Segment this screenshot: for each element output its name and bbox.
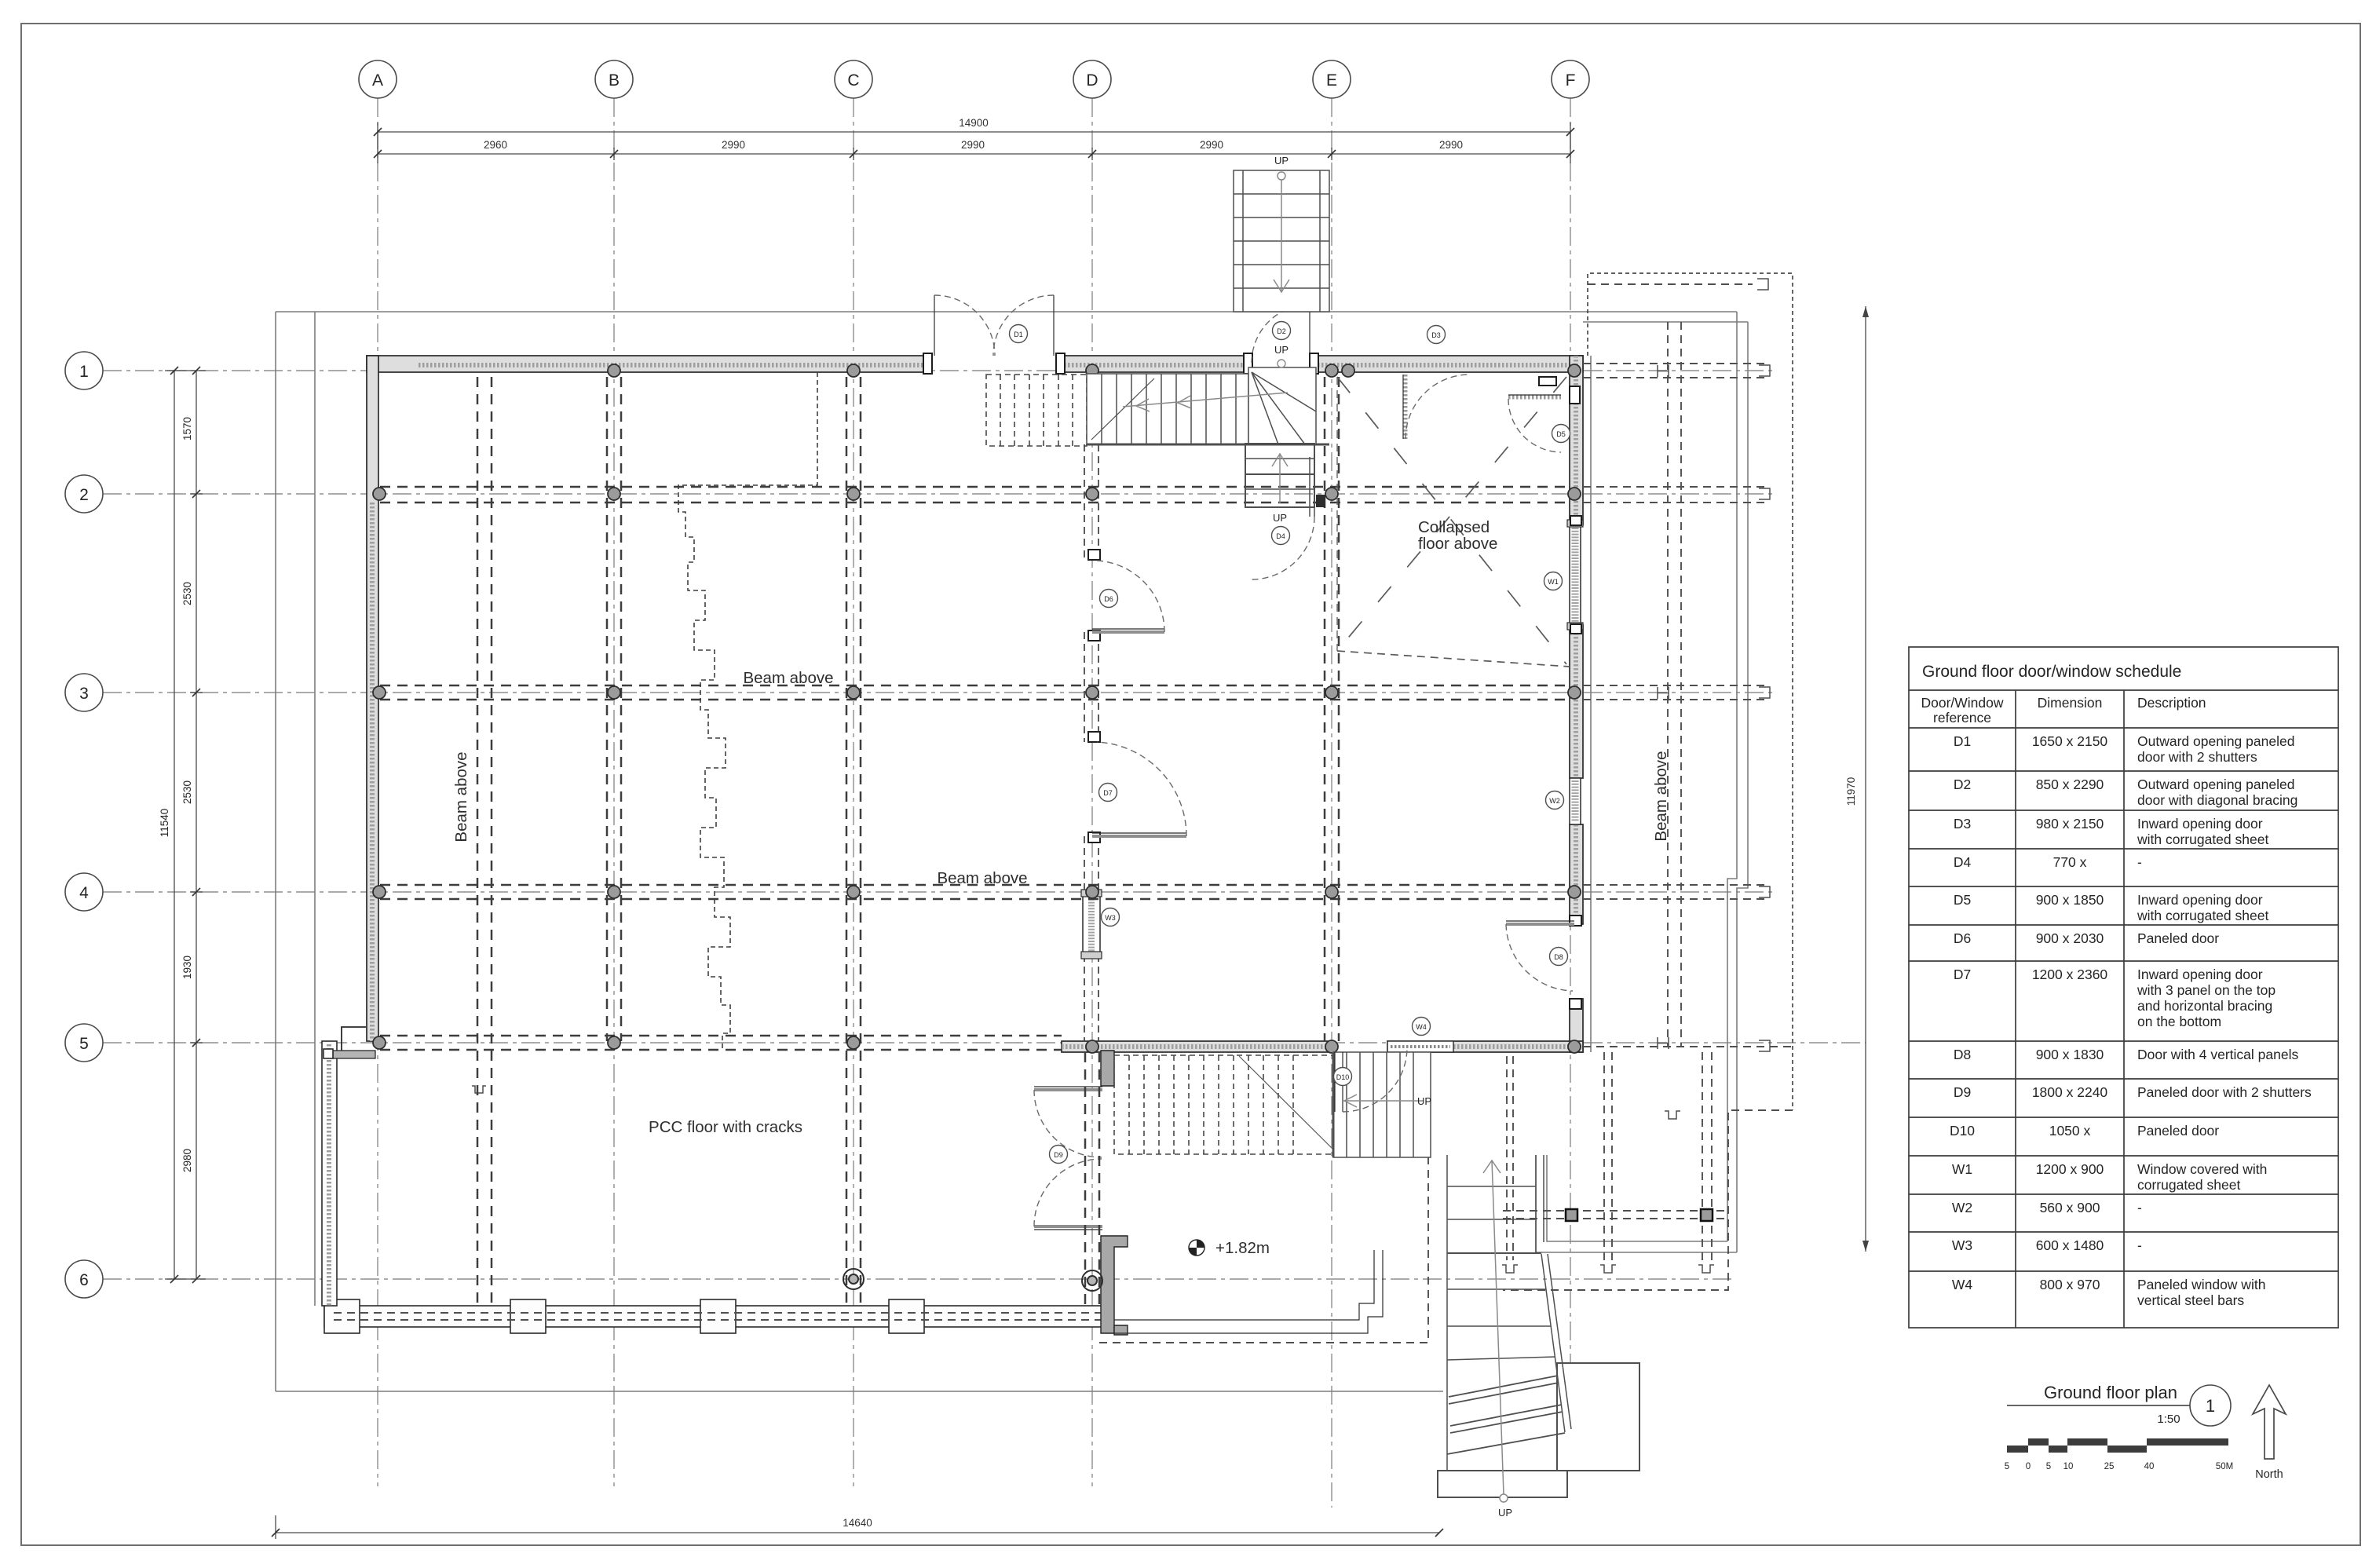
svg-text:UP: UP <box>1274 344 1289 356</box>
svg-text:900 x 1830: 900 x 1830 <box>2036 1047 2104 1062</box>
svg-text:W1: W1 <box>1548 578 1559 586</box>
svg-text:850 x 2290: 850 x 2290 <box>2036 777 2104 792</box>
svg-text:UP: UP <box>1498 1507 1512 1519</box>
svg-text:reference: reference <box>1933 710 1991 726</box>
svg-text:-: - <box>2137 1237 2142 1253</box>
svg-text:W4: W4 <box>1952 1277 1973 1292</box>
svg-text:UP: UP <box>1417 1095 1431 1107</box>
svg-text:Paneled door: Paneled door <box>2137 1123 2219 1139</box>
svg-text:2: 2 <box>79 486 89 504</box>
svg-text:560 x 900: 560 x 900 <box>2040 1200 2100 1215</box>
svg-text:D10: D10 <box>1950 1123 1975 1139</box>
svg-text:25: 25 <box>2104 1462 2115 1471</box>
svg-text:W2: W2 <box>1952 1200 1972 1215</box>
svg-text:D9: D9 <box>1954 1084 1971 1100</box>
svg-text:2990: 2990 <box>1200 139 1223 151</box>
svg-text:Ground floor plan: Ground floor plan <box>2044 1383 2177 1402</box>
svg-text:900 x 1850: 900 x 1850 <box>2036 892 2104 908</box>
svg-text:D3: D3 <box>1431 331 1441 339</box>
svg-text:40: 40 <box>2144 1462 2155 1471</box>
svg-text:W3: W3 <box>1105 914 1116 922</box>
svg-text:F: F <box>1566 71 1576 90</box>
svg-text:6: 6 <box>79 1271 89 1289</box>
svg-text:2960: 2960 <box>484 139 507 151</box>
svg-text:Beam above: Beam above <box>743 669 833 687</box>
svg-text:D3: D3 <box>1954 816 1971 832</box>
svg-text:14900: 14900 <box>959 117 989 129</box>
svg-text:1930: 1930 <box>181 956 193 979</box>
svg-text:D7: D7 <box>1103 789 1113 797</box>
svg-text:corrugated sheet: corrugated sheet <box>2137 1177 2240 1193</box>
svg-text:D9: D9 <box>1054 1151 1063 1159</box>
svg-text:2980: 2980 <box>181 1149 193 1172</box>
svg-text:-: - <box>2137 1200 2142 1215</box>
svg-text:770 x: 770 x <box>2053 854 2087 870</box>
svg-text:UP: UP <box>1273 512 1287 524</box>
svg-text:600 x 1480: 600 x 1480 <box>2036 1237 2104 1253</box>
svg-text:Description: Description <box>2137 695 2206 711</box>
svg-text:W3: W3 <box>1952 1237 1972 1253</box>
svg-text:with 3 panel on the top: with 3 panel on the top <box>2137 982 2275 998</box>
svg-text:D: D <box>1086 71 1098 90</box>
svg-text:D1: D1 <box>1954 733 1971 749</box>
svg-text:1: 1 <box>79 363 89 381</box>
svg-text:0: 0 <box>2026 1462 2031 1471</box>
svg-text:11970: 11970 <box>1845 777 1857 806</box>
svg-text:D1: D1 <box>1014 331 1023 338</box>
svg-text:floor above: floor above <box>1418 535 1497 553</box>
svg-text:D8: D8 <box>1954 1047 1971 1062</box>
svg-text:2990: 2990 <box>1439 139 1463 151</box>
svg-text:-: - <box>2137 854 2142 870</box>
svg-text:W1: W1 <box>1952 1161 1972 1177</box>
svg-text:and horizontal bracing: and horizontal bracing <box>2137 998 2272 1014</box>
svg-text:E: E <box>1326 71 1337 90</box>
svg-text:1: 1 <box>2206 1396 2215 1416</box>
svg-text:door with 2 shutters: door with 2 shutters <box>2137 749 2257 765</box>
svg-text:Door/Window: Door/Window <box>1921 695 2003 711</box>
svg-text:North: North <box>2255 1468 2283 1481</box>
svg-text:B: B <box>609 71 620 90</box>
svg-text:+1.82m: +1.82m <box>1215 1239 1270 1257</box>
svg-text:D10: D10 <box>1336 1073 1350 1081</box>
svg-text:Beam above: Beam above <box>452 751 470 842</box>
svg-text:1:50: 1:50 <box>2157 1413 2180 1426</box>
svg-text:D8: D8 <box>1554 953 1563 961</box>
svg-text:D6: D6 <box>1104 595 1113 603</box>
svg-text:Door with 4 vertical panels: Door with 4 vertical panels <box>2137 1047 2298 1062</box>
svg-text:D2: D2 <box>1954 777 1971 792</box>
svg-text:Ground floor door/window sched: Ground floor door/window schedule <box>1922 663 2181 681</box>
svg-text:1050 x: 1050 x <box>2049 1123 2091 1139</box>
svg-text:980 x 2150: 980 x 2150 <box>2036 816 2104 832</box>
svg-text:D5: D5 <box>1556 430 1566 438</box>
svg-text:5: 5 <box>2046 1462 2051 1471</box>
svg-text:W4: W4 <box>1416 1023 1427 1031</box>
svg-text:Collapsed: Collapsed <box>1418 518 1490 536</box>
svg-text:W2: W2 <box>1549 797 1560 805</box>
svg-text:1200 x 2360: 1200 x 2360 <box>2032 967 2108 982</box>
svg-text:3: 3 <box>79 685 89 703</box>
svg-text:4: 4 <box>79 884 89 902</box>
svg-text:D4: D4 <box>1954 854 1972 870</box>
svg-text:5: 5 <box>79 1035 89 1053</box>
svg-text:1570: 1570 <box>181 417 193 440</box>
svg-text:on the bottom: on the bottom <box>2137 1014 2221 1029</box>
svg-text:Beam above: Beam above <box>1652 751 1670 841</box>
svg-text:Paneled door: Paneled door <box>2137 930 2219 946</box>
svg-text:2990: 2990 <box>961 139 985 151</box>
svg-text:vertical steel bars: vertical steel bars <box>2137 1292 2244 1308</box>
svg-text:1200 x 900: 1200 x 900 <box>2036 1161 2104 1177</box>
svg-text:2530: 2530 <box>181 582 193 605</box>
svg-text:D2: D2 <box>1277 327 1286 335</box>
svg-text:Paneled door with 2 shutters: Paneled door with 2 shutters <box>2137 1084 2312 1100</box>
svg-text:5: 5 <box>2005 1462 2009 1471</box>
svg-text:D4: D4 <box>1276 532 1285 540</box>
svg-text:door with diagonal bracing: door with diagonal bracing <box>2137 792 2297 808</box>
svg-text:Window covered with: Window covered with <box>2137 1161 2267 1177</box>
svg-text:C: C <box>847 71 859 90</box>
svg-text:D6: D6 <box>1954 930 1971 946</box>
svg-text:Outward opening paneled: Outward opening paneled <box>2137 777 2294 792</box>
svg-text:800 x 970: 800 x 970 <box>2040 1277 2100 1292</box>
svg-text:with corrugated sheet: with corrugated sheet <box>2137 908 2268 923</box>
svg-text:2530: 2530 <box>181 780 193 804</box>
svg-text:Inward opening door: Inward opening door <box>2137 816 2263 832</box>
svg-text:D7: D7 <box>1954 967 1971 982</box>
svg-text:D5: D5 <box>1954 892 1971 908</box>
svg-text:A: A <box>372 71 383 90</box>
svg-text:Inward opening door: Inward opening door <box>2137 892 2263 908</box>
svg-text:1650 x 2150: 1650 x 2150 <box>2032 733 2108 749</box>
svg-text:1800 x 2240: 1800 x 2240 <box>2032 1084 2108 1100</box>
svg-text:900 x 2030: 900 x 2030 <box>2036 930 2104 946</box>
svg-text:PCC floor with cracks: PCC floor with cracks <box>649 1118 802 1136</box>
svg-text:11540: 11540 <box>159 809 170 838</box>
svg-text:Outward opening paneled: Outward opening paneled <box>2137 733 2294 749</box>
svg-text:Inward opening door: Inward opening door <box>2137 967 2263 982</box>
svg-text:Paneled window with: Paneled window with <box>2137 1277 2265 1292</box>
svg-text:Beam above: Beam above <box>937 869 1027 887</box>
svg-text:Dimension: Dimension <box>2038 695 2103 711</box>
svg-text:50M: 50M <box>2216 1462 2233 1471</box>
svg-text:14640: 14640 <box>843 1517 872 1529</box>
svg-text:UP: UP <box>1274 155 1289 166</box>
svg-text:with corrugated sheet: with corrugated sheet <box>2137 832 2268 847</box>
svg-text:2990: 2990 <box>722 139 745 151</box>
svg-text:10: 10 <box>2063 1462 2074 1471</box>
